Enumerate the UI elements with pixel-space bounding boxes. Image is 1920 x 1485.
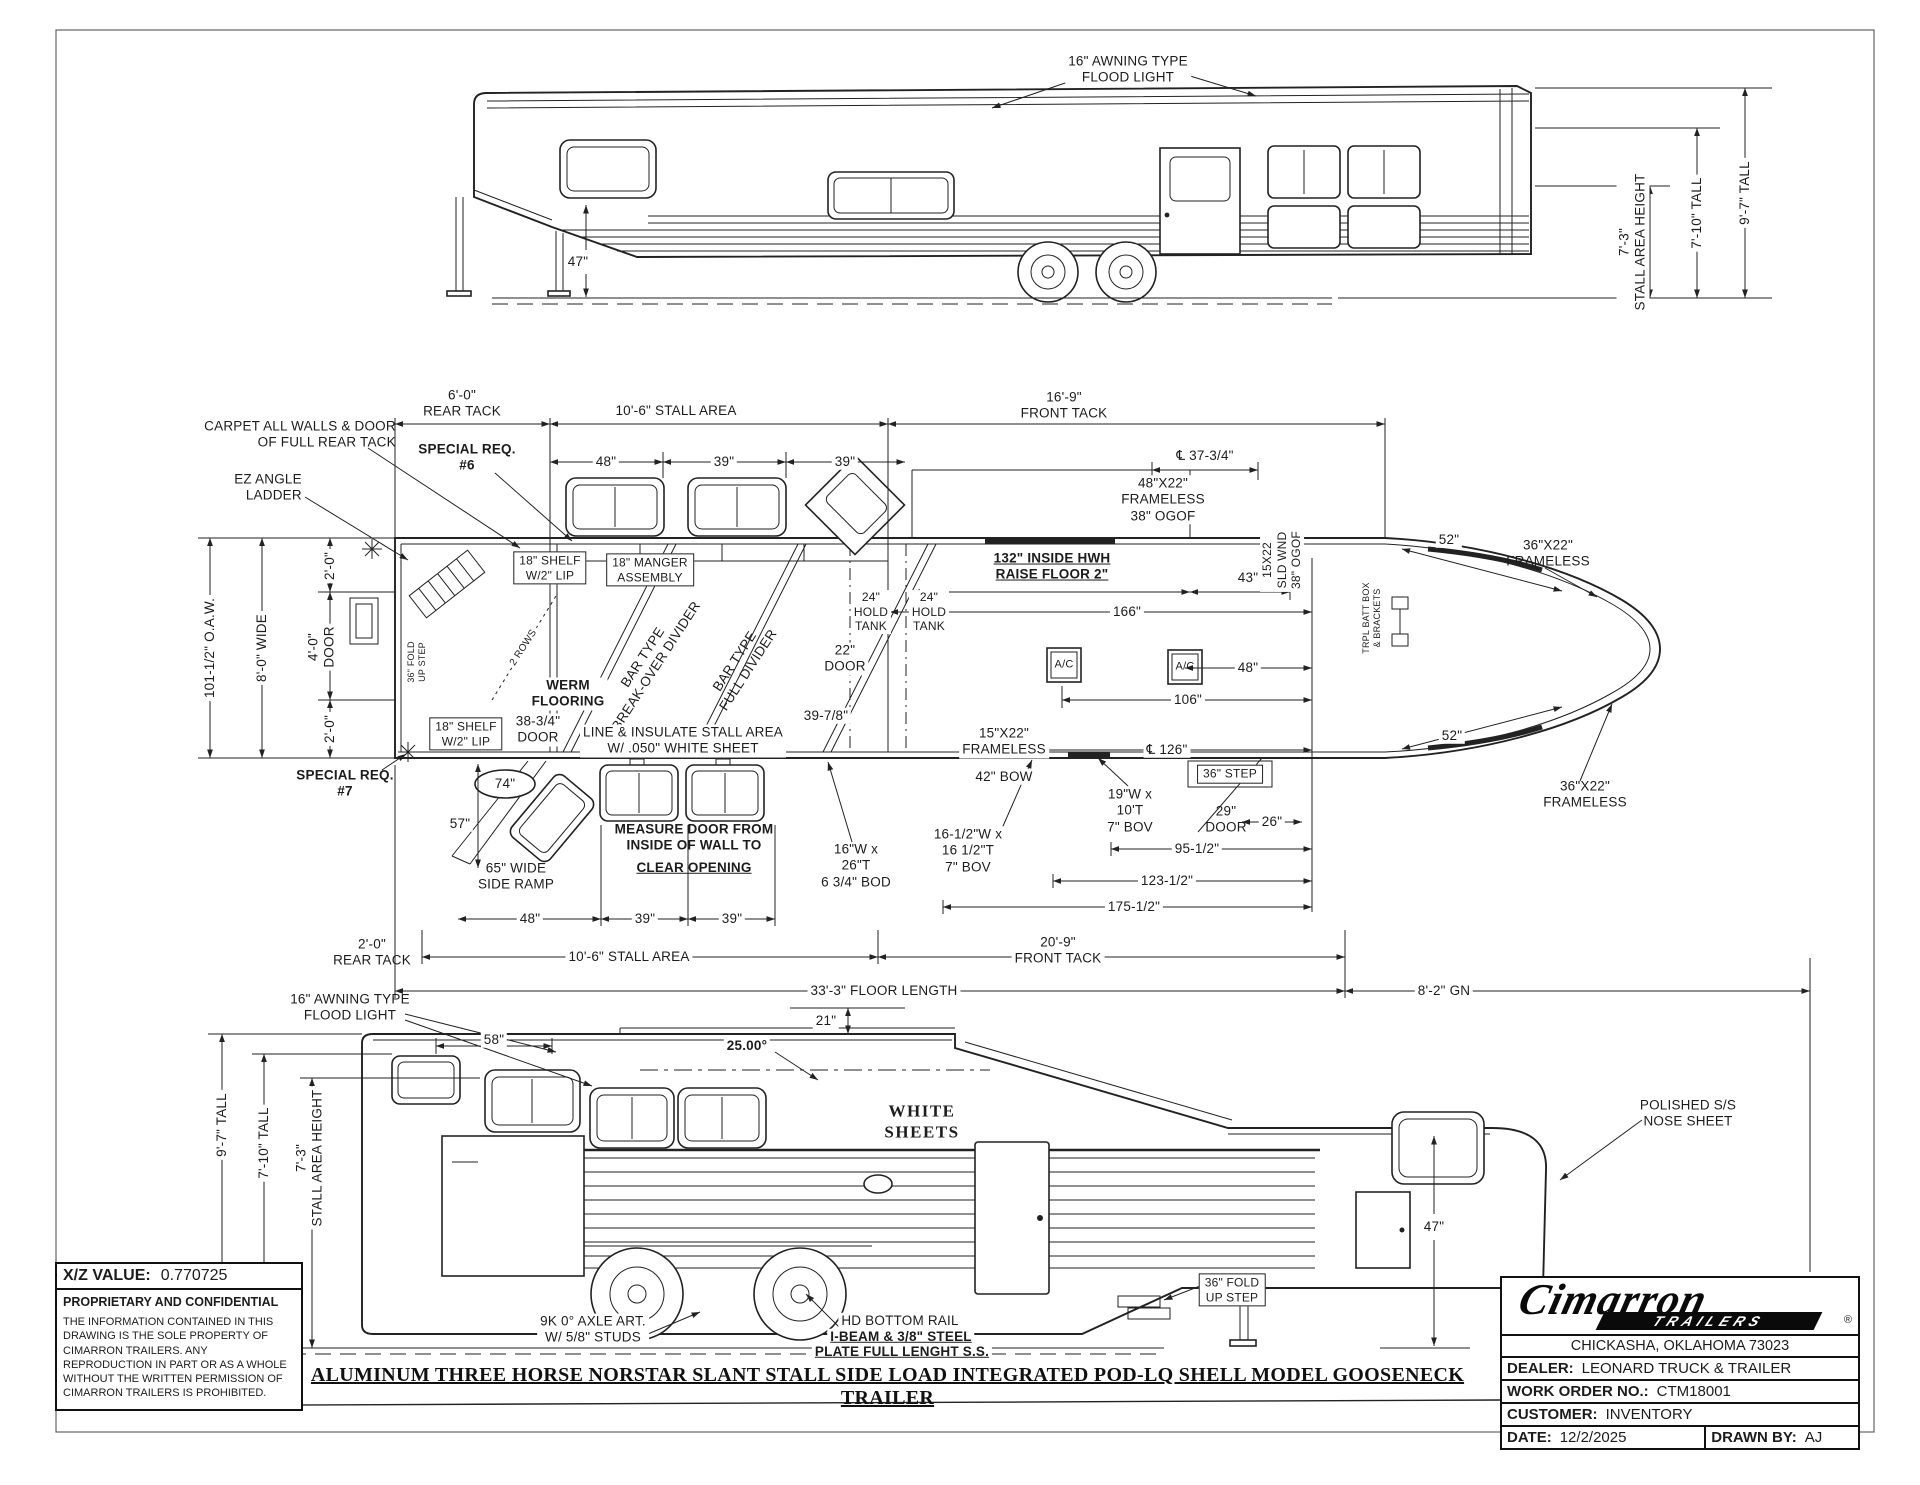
bv-nose-sheet-note: POLISHED S/S NOSE SHEET: [1640, 1098, 1736, 1131]
fp-ac-unit-b: A/C: [1176, 660, 1195, 673]
bv-ibeam-note: I-BEAM & 3/8" STEEL: [827, 1329, 974, 1345]
customer-label: CUSTOMER:: [1507, 1406, 1598, 1423]
bv-58-dim: 58": [481, 1032, 507, 1048]
bv-stall-height-dim: 7'-3" STALL AREA HEIGHT: [294, 1087, 327, 1230]
fp-42-bow-dim: 42" BOW: [972, 769, 1035, 785]
fp-39a-window-dim: 39": [711, 454, 737, 470]
xz-value: 0.770725: [161, 1267, 228, 1285]
top-7-10-dim: 7'-10" TALL: [1689, 174, 1705, 251]
fp-side-ramp-note: 65" WIDE SIDE RAMP: [478, 861, 554, 894]
confidential-notice: PROPRIETARY AND CONFIDENTIAL THE INFORMA…: [55, 1290, 303, 1411]
fp-16x26-bod-dim: 16"W x 26"T 6 3/4" BOD: [821, 841, 891, 890]
fp-front-tack-top-dim: 16'-9" FRONT TACK: [1018, 390, 1111, 423]
blueprint-sheet: .o{fill:none;stroke:#222;stroke-width:1.…: [0, 0, 1920, 1485]
bv-roof-angle-dim: 25.00°: [724, 1038, 770, 1054]
fp-38-door-dim: 38-3/4" DOOR: [513, 714, 563, 747]
fp-95-12-dim: 95-1/2": [1172, 841, 1222, 857]
fp-39-78-dim: 39-7/8": [801, 708, 851, 724]
fp-48-window-dim: 48": [593, 454, 619, 470]
work-order-row: WORK ORDER NO.: CTM18001: [1502, 1381, 1858, 1404]
fp-16-bov-dim: 16-1/2"W x 16 1/2"T 7" BOV: [931, 826, 1005, 875]
fp-29-door-dim: 29" DOOR: [1205, 804, 1246, 837]
date-value: 12/2/2025: [1560, 1429, 1627, 1446]
fp-74-dim: 74": [495, 776, 515, 792]
fp-gooseneck-dim: 8'-2" GN: [1415, 983, 1473, 999]
fp-manger-note: 18" MANGER ASSEMBLY: [606, 553, 694, 586]
fp-shelf-left-note: 18" SHELF W/2" LIP: [429, 717, 502, 750]
fp-52-top-dim: 52": [1436, 532, 1462, 548]
brand-banner: TRAILERS: [1596, 1312, 1823, 1330]
fp-oaw-dim: 101-1/2" O.A.W.: [202, 595, 218, 701]
fp-centerline-126-dim: ℄ 126": [1144, 742, 1191, 758]
fp-52-bottom-dim: 52": [1439, 728, 1465, 744]
fp-werm-flooring-note: WERM FLOORING: [529, 678, 608, 711]
confidential-text: THE INFORMATION CONTAINED IN THIS DRAWIN…: [63, 1315, 295, 1401]
fp-22-door-dim: 22" DOOR: [821, 643, 868, 676]
fp-48-bottom-dim: 48": [517, 911, 543, 927]
fp-175-12-dim: 175-1/2": [1105, 899, 1163, 915]
fp-frameless-36x22-top-note: 36"X22" FRAMELESS: [1506, 538, 1590, 571]
fp-36-step-note: 36" STEP: [1197, 765, 1263, 784]
fp-inside-hwh-note: 132" INSIDE HWH RAISE FLOOR 2": [991, 551, 1114, 584]
bottom-view-art: [206, 1008, 1642, 1354]
drawn-by-value: AJ: [1805, 1429, 1823, 1446]
drawing-title: ALUMINUM THREE HORSE NORSTAR SLANT STALL…: [290, 1364, 1485, 1410]
fp-123-12-dim: 123-1/2": [1138, 873, 1196, 889]
customer-row: CUSTOMER: INVENTORY: [1502, 1404, 1858, 1427]
fp-166-dim: 166": [1110, 604, 1144, 620]
work-order-value: CTM18001: [1657, 1383, 1731, 1400]
drawn-by-label: DRAWN BY:: [1711, 1429, 1797, 1446]
fp-frameless-48x22-note: 48"X22" FRAMELESS 38" OGOF: [1118, 475, 1208, 524]
xz-value-row: X/Z VALUE: 0.770725: [55, 1262, 303, 1290]
brand-logo: Cimarron TRAILERS ®: [1502, 1278, 1858, 1336]
fp-centerline-37-dim: ℄ 37-3/4": [1173, 448, 1236, 464]
bottom-view-slats: [480, 1150, 1320, 1268]
bv-9-7-dim: 9'-7" TALL: [214, 1090, 230, 1160]
fp-57-dim: 57": [447, 816, 473, 832]
fp-sld-wnd-note: 15X22 SLD WND 38" OGOF: [1260, 528, 1304, 592]
fp-8ft-wide-dim: 8'-0" WIDE: [254, 611, 270, 685]
fp-rear-tack-bottom-dim: 2'-0" REAR TACK: [333, 937, 411, 970]
brand-sub: TRAILERS: [1650, 1313, 1768, 1329]
fp-43-dim: 43": [1235, 570, 1261, 586]
fp-hold-tank-a: 24" HOLD TANK: [851, 590, 891, 634]
bv-bottom-rail-note: HD BOTTOM RAIL: [838, 1313, 961, 1329]
work-order-label: WORK ORDER NO.:: [1507, 1383, 1649, 1400]
fp-stall-area-bottom-dim: 10'-6" STALL AREA: [565, 949, 692, 965]
bv-axle-note: 9K 0° AXLE ART. W/ 5/8" STUDS: [537, 1314, 649, 1347]
date-label: DATE:: [1507, 1429, 1552, 1446]
fp-measure-door-note: MEASURE DOOR FROM INSIDE OF WALL TO: [615, 822, 774, 855]
top-view-art: [447, 76, 1772, 304]
fp-ez-ladder-note: EZ ANGLE LADDER: [234, 472, 302, 505]
info-block: X/Z VALUE: 0.770725 PROPRIETARY AND CONF…: [55, 1262, 303, 1411]
fp-special-req-7: SPECIAL REQ. #7: [296, 768, 393, 801]
bv-47-dim: 47": [1421, 1219, 1447, 1235]
brand-address: CHICKASHA, OKLAHOMA 73023: [1502, 1336, 1858, 1358]
top-47-dim: 47": [565, 254, 591, 270]
fp-39b-window-dim: 39": [832, 454, 858, 470]
fp-2ft-b-dim: 2'-0": [322, 712, 338, 746]
registered-mark: ®: [1844, 1314, 1852, 1326]
fp-19-bov-dim: 19"W x 10'T 7" BOV: [1104, 786, 1156, 835]
top-stall-height-dim: 7'-3" STALL AREA HEIGHT: [1617, 171, 1650, 314]
top-flood-light-note: 16" AWNING TYPE FLOOD LIGHT: [1065, 54, 1191, 87]
fp-batt-box-note: TRPL BATT BOX & BRACKETS: [1361, 579, 1383, 656]
drawn-by-cell: DRAWN BY: AJ: [1706, 1427, 1827, 1448]
fp-48-right-dim: 48": [1235, 660, 1261, 676]
dealer-row: DEALER: LEONARD TRUCK & TRAILER: [1502, 1358, 1858, 1381]
bv-plate-note: PLATE FULL LENGHT S.S.: [812, 1344, 992, 1360]
dealer-value: LEONARD TRUCK & TRAILER: [1582, 1360, 1792, 1377]
fp-rear-tack-top-dim: 6'-0" REAR TACK: [423, 388, 501, 421]
xz-value-label: X/Z VALUE:: [63, 1267, 151, 1285]
title-block: Cimarron TRAILERS ® CHICKASHA, OKLAHOMA …: [1500, 1276, 1860, 1450]
bv-fold-step-note: 36" FOLD UP STEP: [1199, 1273, 1266, 1306]
fp-floor-length-dim: 33'-3" FLOOR LENGTH: [808, 983, 961, 999]
fp-frameless-15x22-note: 15"X22" FRAMELESS: [959, 726, 1049, 759]
fp-line-insulate-note: LINE & INSULATE STALL AREA W/ .050" WHIT…: [580, 725, 786, 758]
fp-shelf-top-note: 18" SHELF W/2" LIP: [513, 551, 586, 584]
top-9-7-dim: 9'-7" TALL: [1737, 158, 1753, 228]
fp-ac-unit-a: A/C: [1055, 658, 1074, 671]
customer-value: INVENTORY: [1606, 1406, 1693, 1423]
bv-21-dim: 21": [813, 1013, 839, 1029]
fp-2ft-a-dim: 2'-0": [322, 549, 338, 583]
fp-carpet-note: CARPET ALL WALLS & DOOR OF FULL REAR TAC…: [204, 419, 396, 452]
fp-39d-bottom-dim: 39": [719, 911, 745, 927]
fp-4ft-door-dim: 4'-0" DOOR: [306, 623, 339, 670]
fp-clear-opening-note: CLEAR OPENING: [636, 860, 751, 876]
date-row: DATE: 12/2/2025 DRAWN BY: AJ: [1502, 1427, 1858, 1448]
bv-7-10-dim: 7'-10" TALL: [256, 1104, 272, 1181]
fp-front-tack-bottom-dim: 20'-9" FRONT TACK: [1012, 935, 1105, 968]
fp-hold-tank-b: 24" HOLD TANK: [909, 590, 949, 634]
dealer-label: DEALER:: [1507, 1360, 1574, 1377]
date-cell: DATE: 12/2/2025: [1502, 1427, 1706, 1448]
fp-frameless-36x22-bottom-note: 36"X22" FRAMELESS: [1543, 779, 1627, 812]
bv-white-sheets-note: WHITE SHEETS: [884, 1101, 959, 1142]
bv-flood-light-note: 16" AWNING TYPE FLOOD LIGHT: [290, 992, 410, 1025]
fp-fold-step-note: 36" FOLD UP STEP: [406, 638, 428, 685]
fp-stall-area-top-dim: 10'-6" STALL AREA: [612, 403, 739, 419]
fp-39c-bottom-dim: 39": [632, 911, 658, 927]
fp-26-dim: 26": [1259, 814, 1285, 830]
fp-special-req-6: SPECIAL REQ. #6: [418, 442, 515, 475]
confidential-title: PROPRIETARY AND CONFIDENTIAL: [63, 1295, 295, 1309]
fp-106-dim: 106": [1171, 692, 1205, 708]
